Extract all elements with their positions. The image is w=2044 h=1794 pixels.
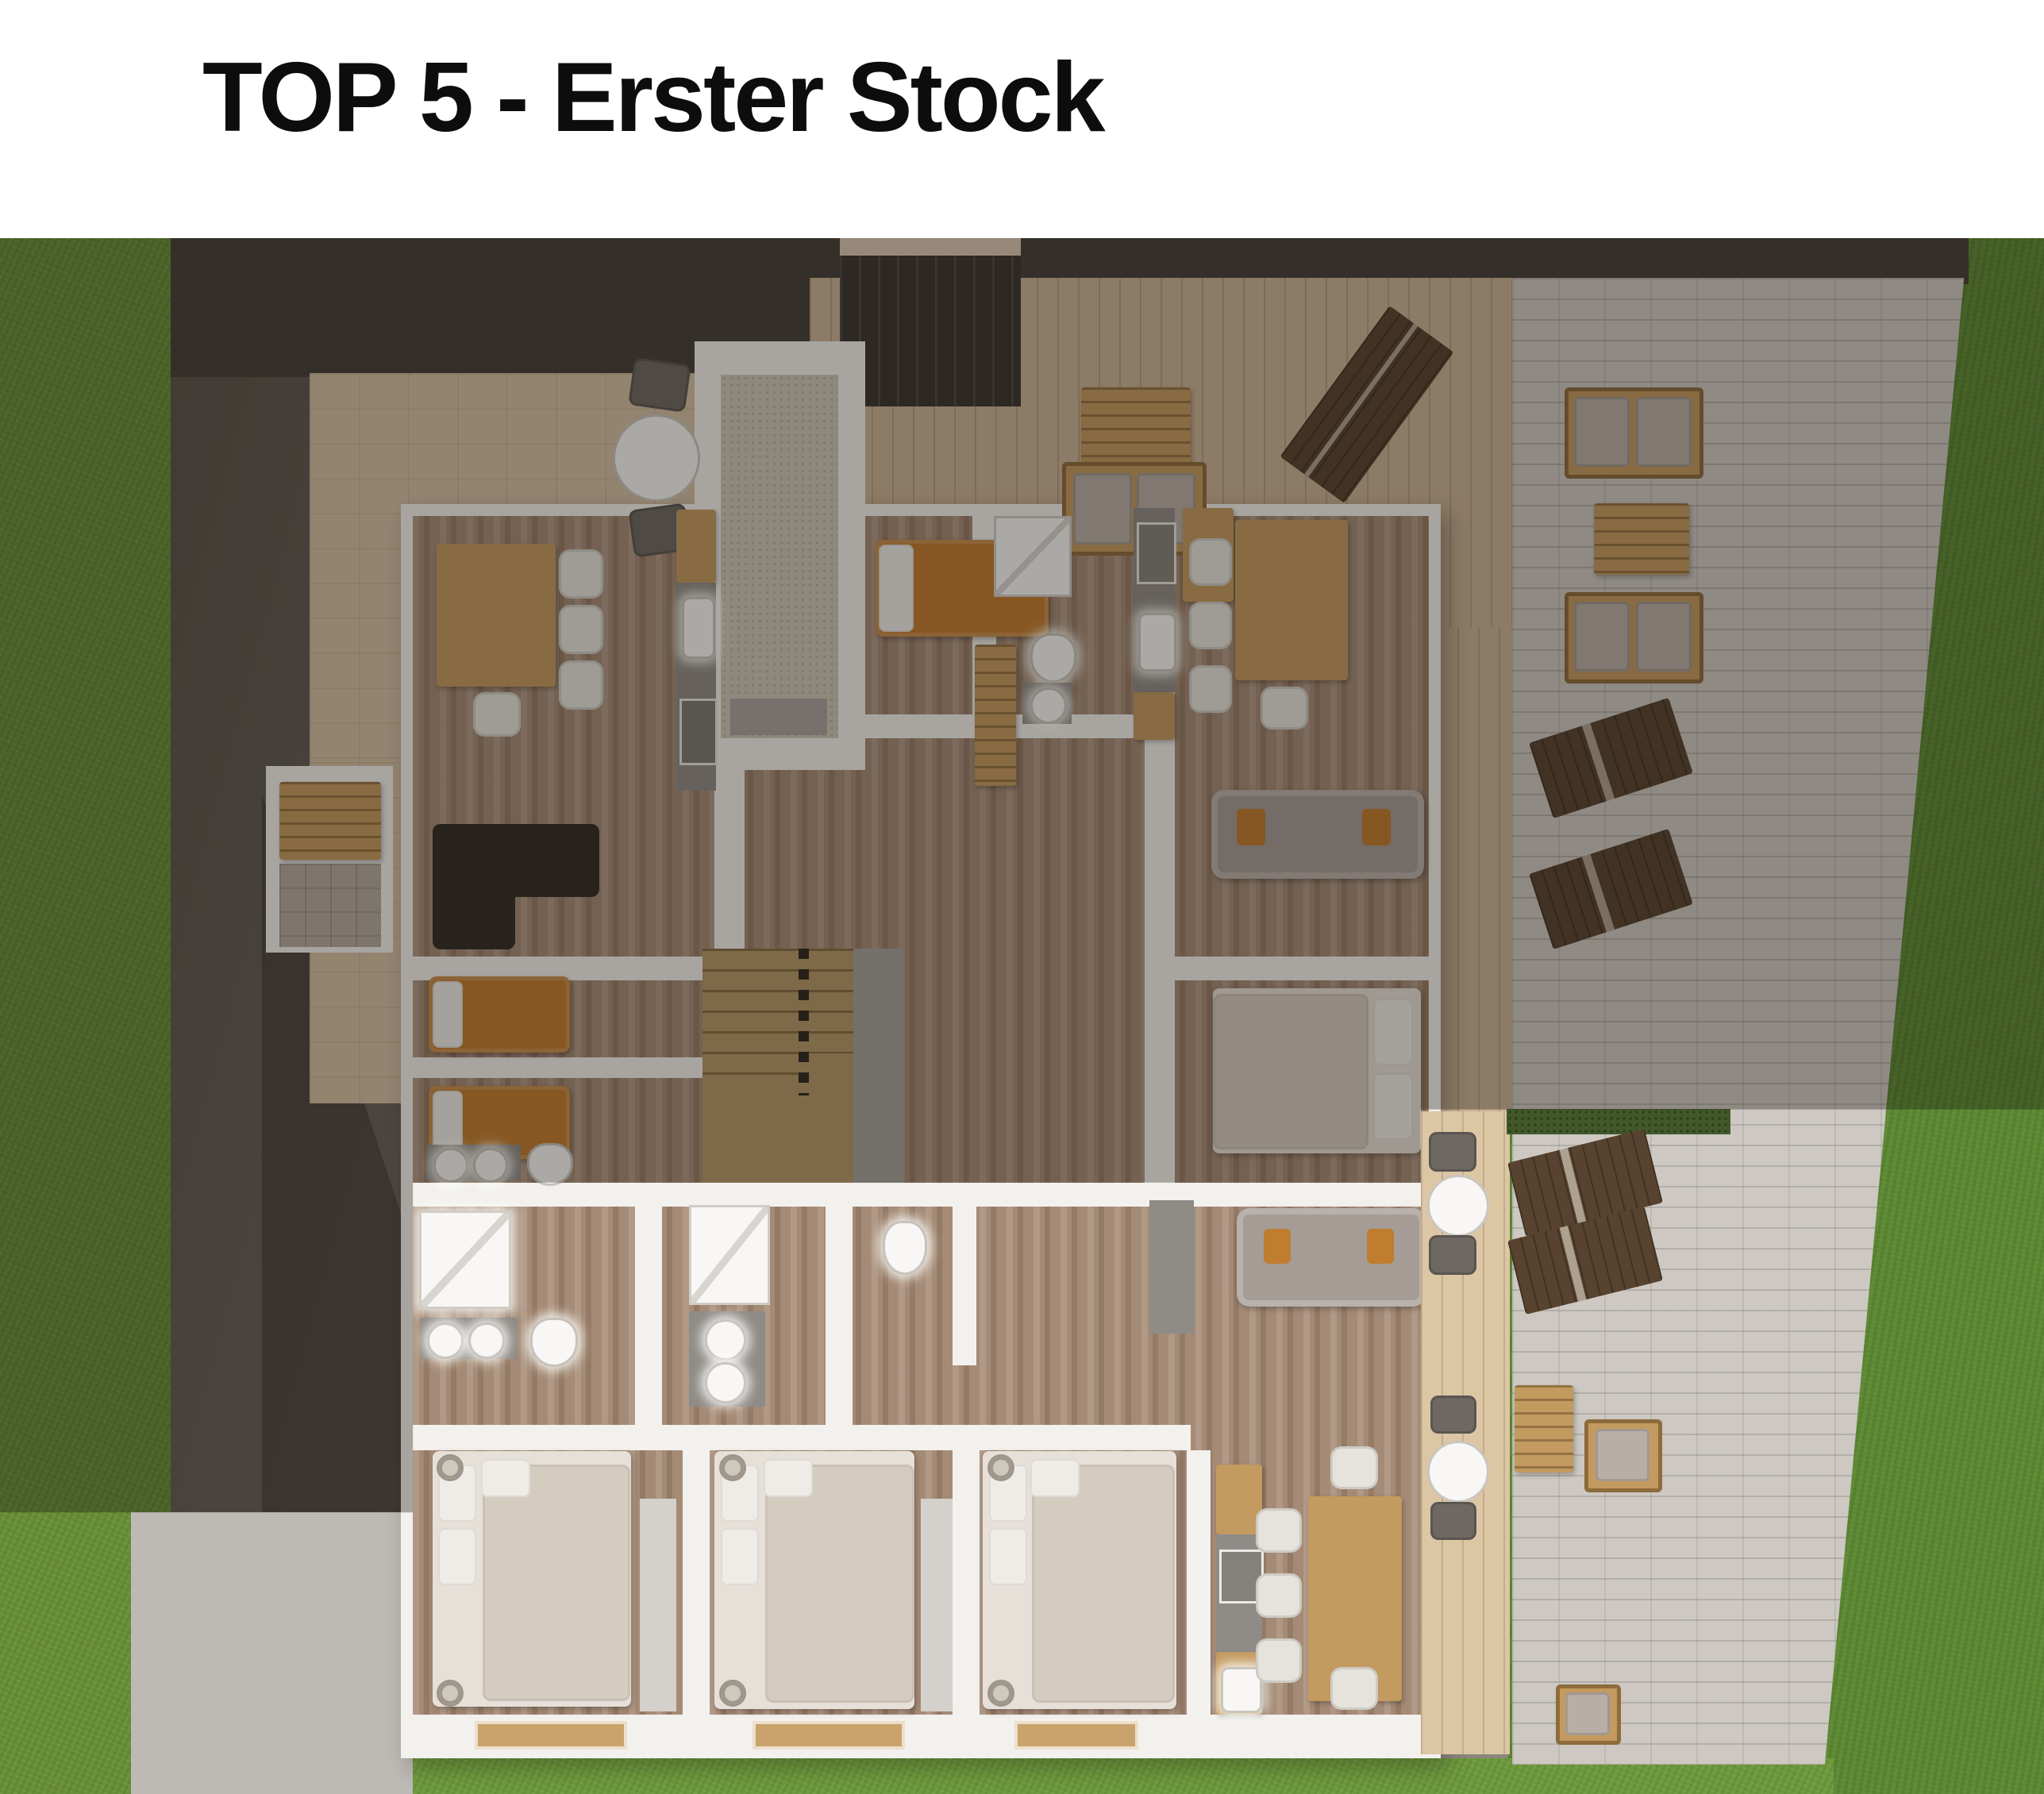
dining-chair <box>1261 687 1308 730</box>
dark-corner-sofa-chaise <box>433 824 515 949</box>
top5-wall-bath2 <box>826 1207 853 1429</box>
sofa-cushion <box>1636 397 1692 467</box>
bed-pillow <box>1373 1073 1413 1140</box>
top5-shower <box>419 1211 511 1309</box>
ceiling-spot <box>719 1454 746 1481</box>
top5-wall-br1-br2 <box>683 1450 710 1715</box>
bed-pillow <box>1030 1459 1080 1497</box>
top5-sofa <box>1237 1208 1426 1307</box>
atrium-doormat <box>730 699 827 735</box>
patio-outdoor-sofa <box>1565 592 1703 683</box>
bed-pillow <box>989 1528 1027 1585</box>
terrace-chair <box>1430 1502 1476 1540</box>
ceiling-spot <box>987 1680 1014 1707</box>
dining-chair <box>1189 538 1232 586</box>
toilet <box>527 1143 573 1186</box>
unit2-wardrobe <box>975 645 1016 786</box>
window-sill <box>475 1721 627 1750</box>
terrace-chair <box>1429 1235 1476 1275</box>
unit3-dining-table <box>1235 520 1348 680</box>
sofa-pillow-orange <box>1362 809 1391 845</box>
toilet <box>530 1318 578 1367</box>
unit1-dining-table <box>437 544 556 687</box>
top5-wall-br3-kitchen <box>1187 1450 1211 1715</box>
dining-chair <box>559 605 603 654</box>
dining-chair <box>559 660 603 710</box>
bathroom-sink <box>433 1148 468 1183</box>
wall-unit3-divider <box>1175 957 1429 980</box>
bed-pillow <box>438 1528 476 1585</box>
patio-armchair <box>1584 1419 1662 1492</box>
exterior-stairs <box>840 238 1021 406</box>
patio-coffee-table <box>1594 503 1689 575</box>
shower <box>994 516 1072 597</box>
sofa-pillow-orange <box>1237 809 1265 845</box>
plan-title: TOP 5 - Erster Stock <box>202 41 1103 154</box>
bed-duvet <box>1032 1465 1175 1703</box>
bathroom-sink <box>705 1362 746 1403</box>
sofa-pillow-orange <box>1264 1229 1291 1264</box>
top5-shower-2 <box>689 1205 770 1305</box>
bedside-rug <box>640 1499 676 1711</box>
rendered-floor-plan <box>0 238 2044 1794</box>
top5-wall-bath1 <box>635 1207 662 1429</box>
ceiling-spot <box>437 1680 464 1707</box>
bed-pillow <box>481 1459 530 1497</box>
wall-daybed-divider <box>413 1057 714 1078</box>
kitchen-stove <box>679 699 718 765</box>
bed-pillow <box>764 1459 813 1497</box>
kitchen-sink <box>682 597 715 659</box>
concrete-pad <box>131 1512 413 1794</box>
bathroom-sink <box>705 1319 746 1361</box>
terrace-chair <box>628 357 691 412</box>
sofa-cushion <box>1574 397 1630 467</box>
atrium-gravel-court <box>721 375 838 738</box>
bed-pillow <box>721 1528 759 1585</box>
armchair-cushion <box>1596 1429 1649 1481</box>
east-terrace-band <box>1437 627 1512 1111</box>
patio-outdoor-sofa <box>1565 387 1703 479</box>
bed-duvet <box>765 1465 914 1703</box>
kitchen-sink <box>1138 613 1176 672</box>
porch-bench <box>279 782 381 860</box>
stair-flight-left <box>703 949 804 1080</box>
toilet <box>883 1221 927 1275</box>
hedge-strip <box>1507 1109 1730 1134</box>
sofa-cushion <box>1073 473 1132 545</box>
terrace-chair <box>1430 1396 1476 1434</box>
dining-chair <box>1256 1508 1302 1553</box>
toilet <box>1030 633 1076 683</box>
top5-terrace-table <box>1427 1175 1489 1237</box>
bedside-rug <box>921 1499 953 1711</box>
armchair-cushion <box>1565 1692 1610 1735</box>
dining-chair <box>1189 665 1232 713</box>
dining-chair <box>473 692 521 737</box>
bed-pillow <box>1373 999 1413 1065</box>
terrace-round-table <box>613 414 700 502</box>
bed-duvet <box>1213 994 1368 1149</box>
daybed-pillow <box>433 981 463 1048</box>
ceiling-spot <box>719 1680 746 1707</box>
dining-chair <box>1330 1667 1378 1710</box>
kitchen-cabinet <box>1134 692 1175 740</box>
unit1-kitchen-cabinet <box>676 510 716 583</box>
top5-wall-br2-br3 <box>953 1450 980 1715</box>
unit3-sofa <box>1211 790 1424 879</box>
stair-landing-strip <box>853 949 903 1183</box>
porch-stone-floor <box>279 864 381 947</box>
dining-chair <box>1189 602 1232 649</box>
stair-center-rail <box>799 949 809 1095</box>
window-sill <box>1014 1721 1138 1750</box>
bed-pillow <box>879 545 914 632</box>
bathroom-sink <box>473 1148 508 1183</box>
window-sill <box>753 1721 905 1750</box>
sofa-cushion <box>1636 602 1692 672</box>
bed-duvet <box>483 1465 630 1701</box>
ceiling-spot <box>437 1454 464 1481</box>
dining-chair <box>559 549 603 599</box>
sofa-cushion <box>1574 602 1630 672</box>
kitchen-stove <box>1137 522 1176 584</box>
bathroom-sink <box>427 1322 464 1359</box>
top5-terrace-table <box>1427 1441 1489 1503</box>
bathroom-sink <box>468 1322 505 1359</box>
top5-wall-bedrooms <box>413 1425 1191 1450</box>
dining-chair <box>1256 1573 1302 1618</box>
exterior-stairs-landing <box>840 238 1021 256</box>
page-header: TOP 5 - Erster Stock <box>0 0 2044 238</box>
top5-wall-wc <box>953 1207 976 1365</box>
patio-armchair <box>1556 1684 1621 1745</box>
bathroom-sink <box>1030 687 1067 724</box>
ceiling-spot <box>987 1454 1014 1481</box>
floor-plan-screenshot: TOP 5 - Erster Stock <box>0 0 2044 1794</box>
dining-chair <box>1256 1638 1302 1683</box>
stair-flight-right <box>808 949 853 1053</box>
sofa-pillow-orange <box>1367 1229 1394 1264</box>
patio-side-table <box>1515 1385 1573 1473</box>
terrace-chair <box>1429 1132 1476 1172</box>
dining-chair <box>1330 1446 1378 1489</box>
top5-tv-cabinet <box>1149 1200 1194 1334</box>
